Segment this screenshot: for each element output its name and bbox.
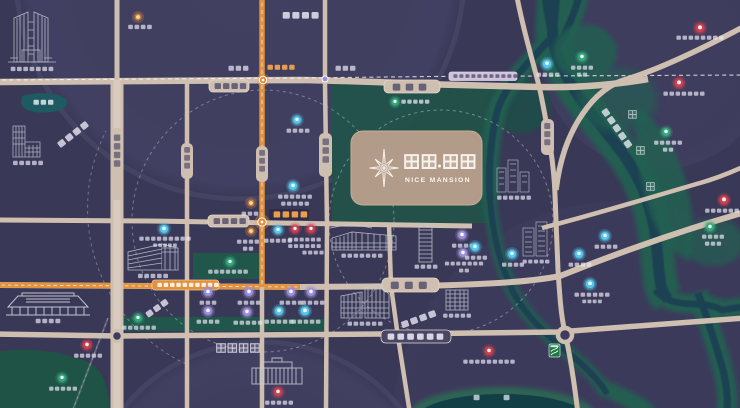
svg-text:NICE MANSION: NICE MANSION xyxy=(405,177,471,184)
